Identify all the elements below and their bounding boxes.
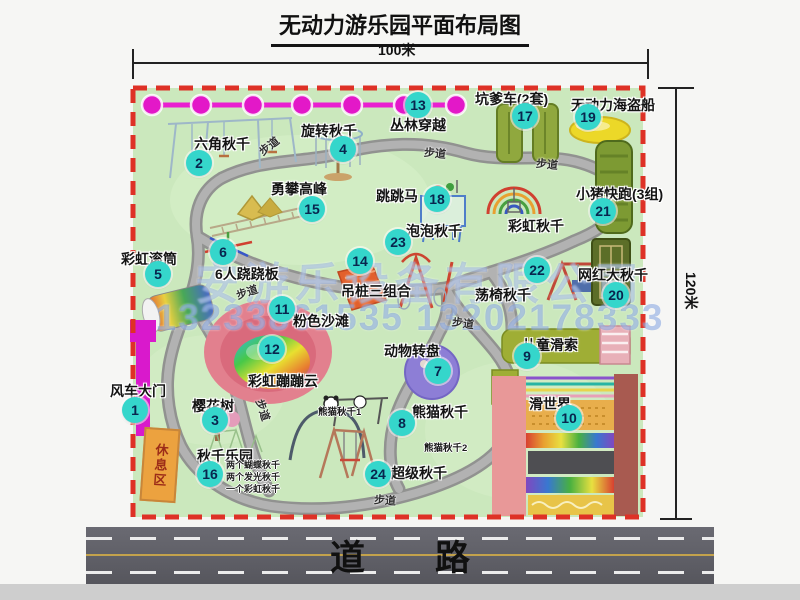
pink-beach-structure [204,300,332,404]
big-swing-pad [592,239,630,305]
road: 道 路 [86,527,714,584]
height-dimension-label: 120米 [681,272,701,309]
pig-run-track [596,141,632,233]
rest-area: 休息区 [139,427,180,503]
animal-turntable-structure [405,345,459,399]
bottom-strip [0,584,800,600]
road-label: 道 路 [330,530,470,581]
map-graphics [0,0,800,600]
rest-area-label: 休息区 [149,442,171,488]
playground-layout-map: 无动力游乐园平面布局图 100米 120米 [0,0,800,600]
width-dimension-label: 100米 [378,40,415,60]
pirate-boat-structure [570,117,630,143]
